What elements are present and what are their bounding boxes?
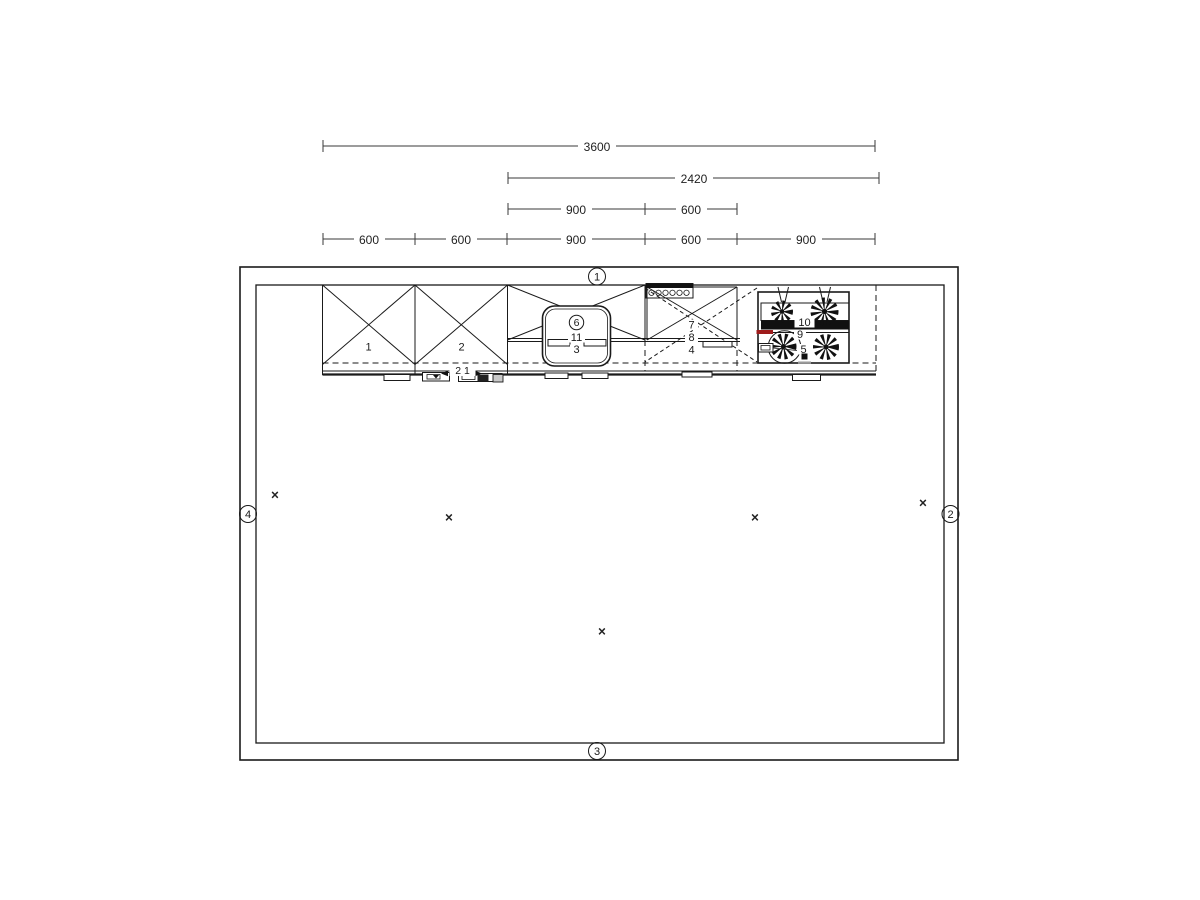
dimension-worktop-run: 2420 xyxy=(508,171,879,186)
glass-rack[interactable] xyxy=(646,284,693,299)
base-cabinet-4-label: 4 xyxy=(688,345,694,357)
under-cabinet-appliances[interactable]: 2 1 xyxy=(423,365,504,382)
x-mark: × xyxy=(445,510,453,525)
hob-mid-label: 9 xyxy=(797,329,803,341)
dim-mid-seg-1: 900 xyxy=(566,203,586,217)
wall-marker-bottom: 3 xyxy=(594,746,600,758)
x-mark: × xyxy=(598,624,606,639)
x-mark: × xyxy=(751,510,759,525)
wall-marker-right: 2 xyxy=(947,509,953,521)
sink-circle-label: 6 xyxy=(574,317,580,329)
dim-bottom-seg-4: 600 xyxy=(681,233,701,247)
wall-marker-left: 4 xyxy=(245,509,251,521)
dim-bottom-seg-1: 600 xyxy=(359,233,379,247)
dim-bottom-seg-5: 900 xyxy=(796,233,816,247)
dim-mid-seg-2: 600 xyxy=(681,203,701,217)
sink-inner-label: 11 xyxy=(571,332,582,344)
dim-bottom-seg-3: 900 xyxy=(566,233,586,247)
dimension-total-label: 3600 xyxy=(584,140,611,154)
x-mark: × xyxy=(919,496,927,511)
dimension-run-label: 2420 xyxy=(681,172,708,186)
dimension-row-bottom: 600 600 900 600 900 xyxy=(323,232,875,247)
tall-cabinet-1[interactable] xyxy=(323,285,416,375)
wall-cabinet-tray xyxy=(703,342,732,348)
dimension-total: 3600 xyxy=(323,139,875,154)
wall-cabinet-8-label: 8 xyxy=(688,332,694,344)
tall-cabinet-1-label: 1 xyxy=(365,342,371,354)
under-cabinet-pair-label: 2 1 xyxy=(455,365,470,377)
hob-red-marker xyxy=(757,330,774,334)
tall-cabinet-2-label: 2 xyxy=(458,342,464,354)
sink-base-label: 3 xyxy=(573,344,579,356)
dimension-row-mid: 900 600 xyxy=(508,202,737,217)
hob[interactable]: 10 9 5 xyxy=(757,287,850,364)
position-marks: × × × × × xyxy=(271,488,927,640)
dim-bottom-seg-2: 600 xyxy=(451,233,471,247)
sink[interactable]: 6 11 3 xyxy=(543,306,611,366)
wall-cabinet-7-label: 7 xyxy=(688,320,694,332)
wall-marker-top: 1 xyxy=(594,272,600,284)
hob-control-caption xyxy=(798,362,811,364)
x-mark: × xyxy=(271,488,279,503)
tall-cabinet-2[interactable] xyxy=(415,285,508,374)
hob-control-icon xyxy=(802,354,808,360)
hob-rail-label: 10 xyxy=(798,317,810,329)
floorplan-canvas: 3600 2420 900 600 600 600 900 600 900 xyxy=(0,0,1200,900)
